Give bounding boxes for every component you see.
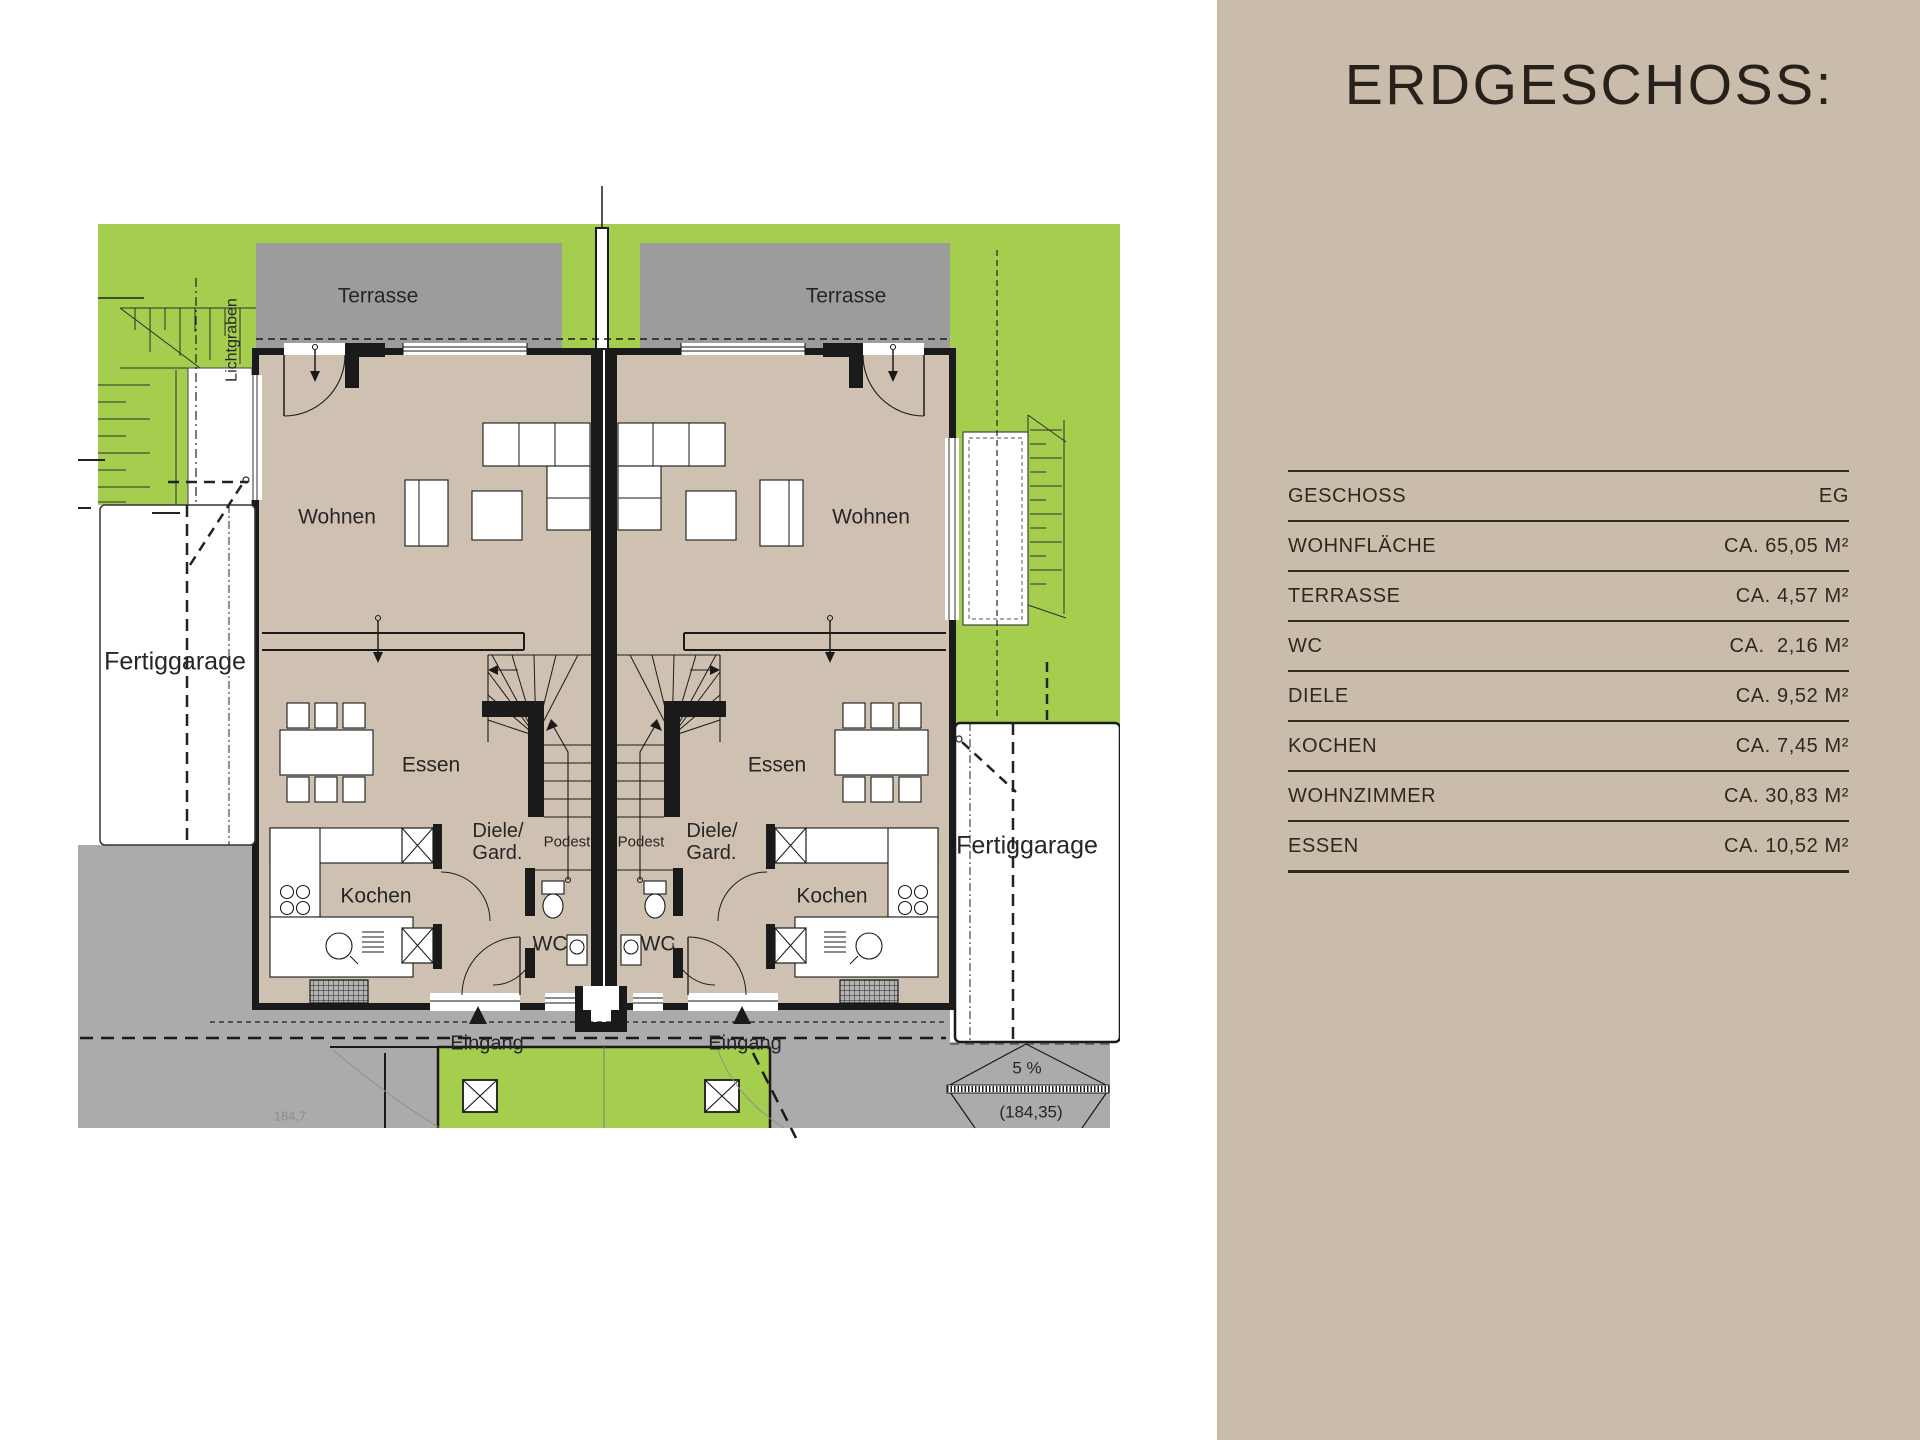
- label-lichtgraben: Lichtgraben: [222, 298, 243, 382]
- row-value: EG: [1819, 485, 1849, 508]
- label-elevation: (184,35): [999, 1102, 1062, 1123]
- table-row: WC CA. 2,16 M²: [1288, 620, 1849, 670]
- row-label: WC: [1288, 635, 1323, 658]
- label-diele-left: Diele/Gard.: [472, 820, 523, 864]
- label-diele-right: Diele/Gard.: [686, 820, 737, 864]
- label-essen-right: Essen: [748, 755, 806, 776]
- table-row: DIELE CA. 9,52 M²: [1288, 670, 1849, 720]
- table-row: WOHNZIMMER CA. 30,83 M²: [1288, 770, 1849, 820]
- label-essen-left: Essen: [402, 755, 460, 776]
- row-value: CA. 7,45 M²: [1736, 735, 1849, 758]
- row-value: CA. 30,83 M²: [1724, 785, 1849, 808]
- row-label: GESCHOSS: [1288, 485, 1406, 508]
- table-row: KOCHEN CA. 7,45 M²: [1288, 720, 1849, 770]
- area-table: GESCHOSS EG WOHNFLÄCHE CA. 65,05 M² TERR…: [1288, 470, 1849, 873]
- row-value: CA. 10,52 M²: [1724, 835, 1849, 858]
- row-label: WOHNZIMMER: [1288, 785, 1436, 808]
- label-podest-right: Podest: [618, 832, 665, 853]
- table-row: ESSEN CA. 10,52 M²: [1288, 820, 1849, 873]
- label-slope: 5 %: [1012, 1058, 1041, 1079]
- info-panel: ERDGESCHOSS: GESCHOSS EG WOHNFLÄCHE CA. …: [1217, 0, 1920, 1440]
- page-title: ERDGESCHOSS:: [1345, 52, 1834, 118]
- label-ground-elevation: 184,7: [274, 1106, 307, 1127]
- row-label: DIELE: [1288, 685, 1349, 708]
- row-value: CA. 65,05 M²: [1724, 535, 1849, 558]
- row-value: CA. 2,16 M²: [1730, 635, 1849, 658]
- table-row: GESCHOSS EG: [1288, 470, 1849, 520]
- row-value: CA. 4,57 M²: [1736, 585, 1849, 608]
- label-kochen-right: Kochen: [796, 886, 867, 907]
- label-terrasse-right: Terrasse: [806, 286, 887, 307]
- label-eingang-right: Eingang: [708, 1034, 781, 1055]
- label-wc-right: WC: [641, 934, 676, 955]
- table-row: WOHNFLÄCHE CA. 65,05 M²: [1288, 520, 1849, 570]
- label-wohnen-right: Wohnen: [832, 507, 910, 528]
- table-row: TERRASSE CA. 4,57 M²: [1288, 570, 1849, 620]
- row-label: TERRASSE: [1288, 585, 1401, 608]
- label-eingang-left: Eingang: [450, 1034, 523, 1055]
- label-wohnen-left: Wohnen: [298, 507, 376, 528]
- floor-plan: Terrasse Terrasse Wohnen Wohnen Essen Es…: [78, 180, 1120, 1145]
- label-podest-left: Podest: [544, 832, 591, 853]
- label-fertiggarage-right: Fertiggarage: [956, 836, 1098, 857]
- row-value: CA. 9,52 M²: [1736, 685, 1849, 708]
- label-wc-left: WC: [533, 934, 568, 955]
- row-label: KOCHEN: [1288, 735, 1377, 758]
- row-label: ESSEN: [1288, 835, 1359, 858]
- label-fertiggarage-left: Fertiggarage: [104, 652, 246, 673]
- label-terrasse-left: Terrasse: [338, 286, 419, 307]
- row-label: WOHNFLÄCHE: [1288, 535, 1436, 558]
- label-kochen-left: Kochen: [340, 886, 411, 907]
